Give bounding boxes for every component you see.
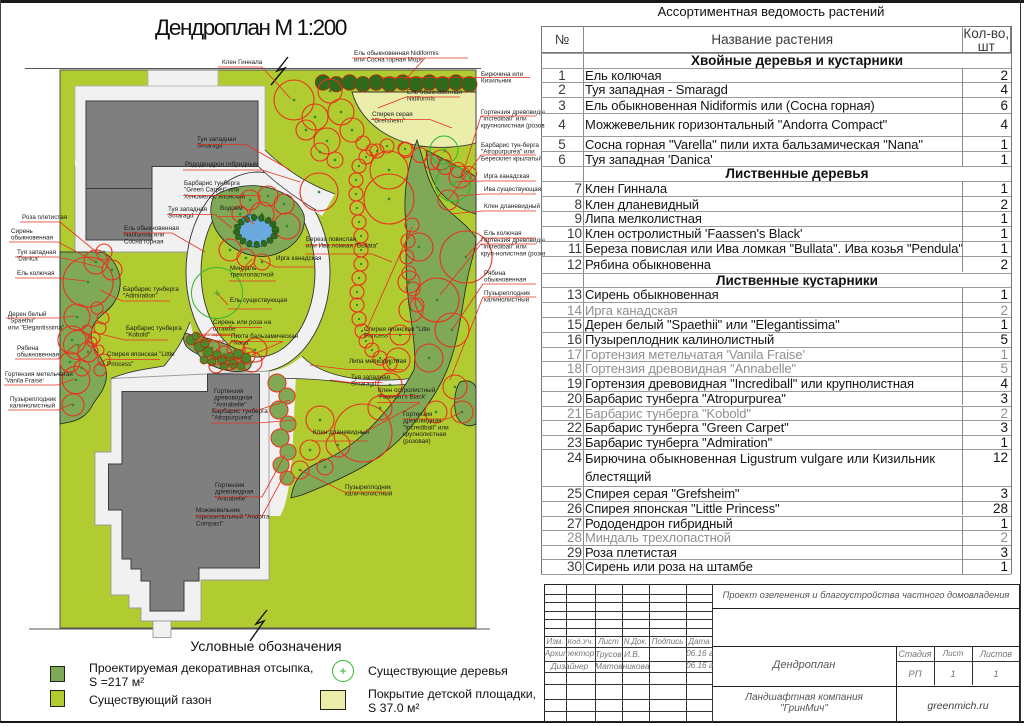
svg-text:круп-нолистная (розовая): круп-нолистная (розовая) bbox=[481, 250, 545, 257]
svg-text:"Annabelle": "Annabelle" bbox=[215, 495, 247, 502]
svg-text:Smaragd: Smaragd bbox=[197, 143, 223, 150]
svg-text:Ирга канадская: Ирга канадская bbox=[484, 173, 529, 180]
svg-text:Ель колючая: Ель колючая bbox=[484, 230, 522, 237]
svg-text:Спирея японская "Little: Спирея японская "Little bbox=[107, 351, 175, 358]
svg-text:Клен Гиннала: Клен Гиннала bbox=[222, 59, 263, 66]
svg-text:многолетники: многолетники bbox=[210, 362, 238, 367]
svg-text:Липа мелколистная: Липа мелколистная bbox=[349, 358, 406, 365]
svg-text:"Grefsheim": "Grefsheim" bbox=[372, 118, 406, 125]
svg-text:Ель колючая: Ель колючая bbox=[17, 270, 55, 277]
svg-text:Рододендрон гибридным: Рододендрон гибридным bbox=[185, 160, 258, 168]
svg-text:Клен дланевидный: Клен дланевидный bbox=[484, 202, 540, 210]
svg-text:'Vanila Fraise': 'Vanila Fraise' bbox=[5, 378, 44, 385]
svg-text:калинолистный: калинолистный bbox=[10, 402, 56, 410]
svg-text:многолетники: многолетники bbox=[197, 339, 225, 344]
svg-text:обыкновенная: обыкновенная bbox=[17, 351, 59, 359]
svg-text:"Kobold": "Kobold" bbox=[126, 332, 150, 339]
svg-text:Роза плетистая: Роза плетистая bbox=[22, 214, 67, 221]
svg-text:"Admiration": "Admiration" bbox=[123, 293, 158, 300]
svg-text:Ирга канадская: Ирга канадская bbox=[276, 255, 321, 262]
svg-text:трехлопастной: трехлопастной bbox=[230, 271, 274, 279]
svg-text:Smaragd: Smaragd bbox=[351, 381, 377, 388]
svg-text:'Faassen's Black': 'Faassen's Black' bbox=[378, 394, 426, 401]
svg-text:Почвопокровные: Почвопокровные bbox=[197, 332, 231, 337]
svg-text:Сосна горная: Сосна горная bbox=[124, 238, 163, 245]
svg-text:Бересклет крылатый: Бересклет крылатый bbox=[481, 154, 542, 162]
svg-text:Кизильник: Кизильник bbox=[481, 78, 512, 85]
svg-text:Хеномелес японский: Хеномелес японский bbox=[184, 192, 246, 200]
svg-text:обыкновенная: обыкновенная bbox=[484, 276, 526, 284]
svg-text:или Ива ломкая "Bullata": или Ива ломкая "Bullata" bbox=[306, 243, 378, 250]
svg-text:Клен дланевидный: Клен дланевидный bbox=[313, 428, 369, 436]
svg-text:обыкновенная: обыкновенная bbox=[11, 234, 53, 242]
svg-text:(розовая): (розовая) bbox=[403, 438, 431, 445]
svg-text:Princess": Princess" bbox=[364, 333, 390, 340]
svg-text:Ива существующая: Ива существующая bbox=[484, 186, 541, 193]
svg-text:Princess": Princess" bbox=[107, 361, 133, 368]
svg-text:крупнолистная (розовая): крупнолистная (розовая) bbox=[481, 122, 545, 129]
svg-text:или "Elegantissima": или "Elegantissima" bbox=[8, 324, 64, 331]
svg-text:Водоем: Водоем bbox=[220, 205, 243, 212]
svg-text:Ель существующая: Ель существующая bbox=[230, 297, 287, 304]
svg-text:"Atropurpurea": "Atropurpurea" bbox=[212, 415, 253, 422]
svg-text:Smaragd: Smaragd bbox=[168, 213, 194, 220]
svg-text:Почвопокровные: Почвопокровные bbox=[210, 355, 244, 360]
svg-text:кали-нолистный: кали-нолистный bbox=[345, 490, 393, 498]
svg-text:"Nana": "Nana" bbox=[231, 340, 251, 347]
svg-text:Compact": Compact" bbox=[196, 520, 223, 527]
